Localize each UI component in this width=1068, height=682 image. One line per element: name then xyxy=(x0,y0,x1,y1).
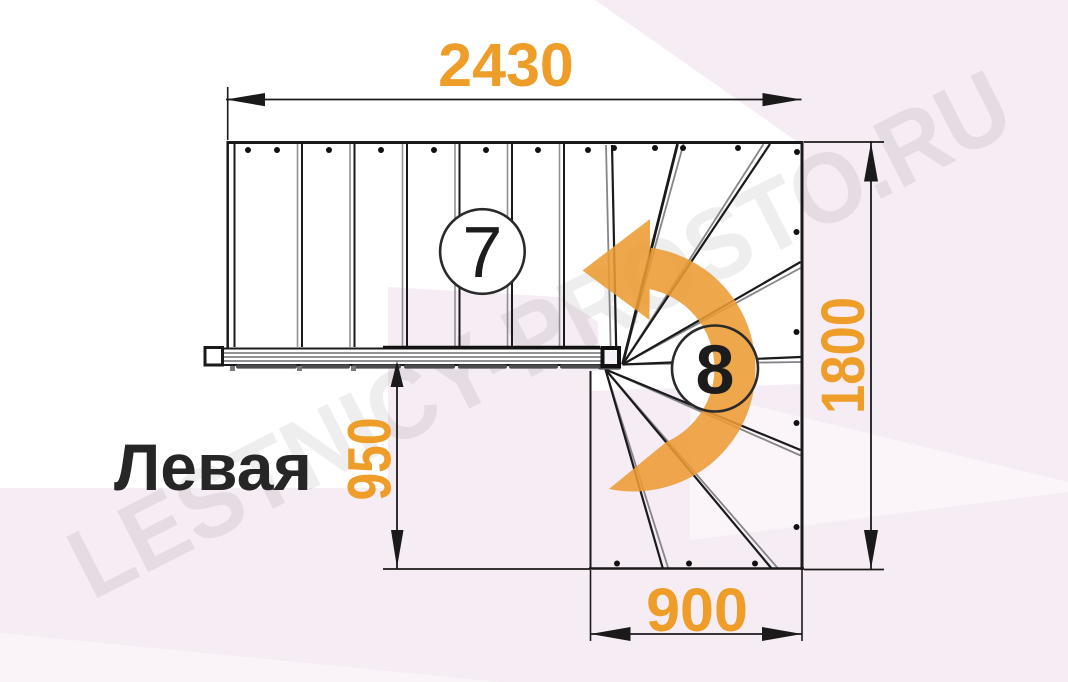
svg-text:7: 7 xyxy=(462,213,502,293)
svg-text:2430: 2430 xyxy=(438,31,574,99)
svg-text:950: 950 xyxy=(336,418,404,501)
svg-text:Левая: Левая xyxy=(114,430,312,504)
svg-text:900: 900 xyxy=(646,576,748,644)
svg-text:8: 8 xyxy=(696,331,735,409)
svg-text:1800: 1800 xyxy=(809,297,877,414)
